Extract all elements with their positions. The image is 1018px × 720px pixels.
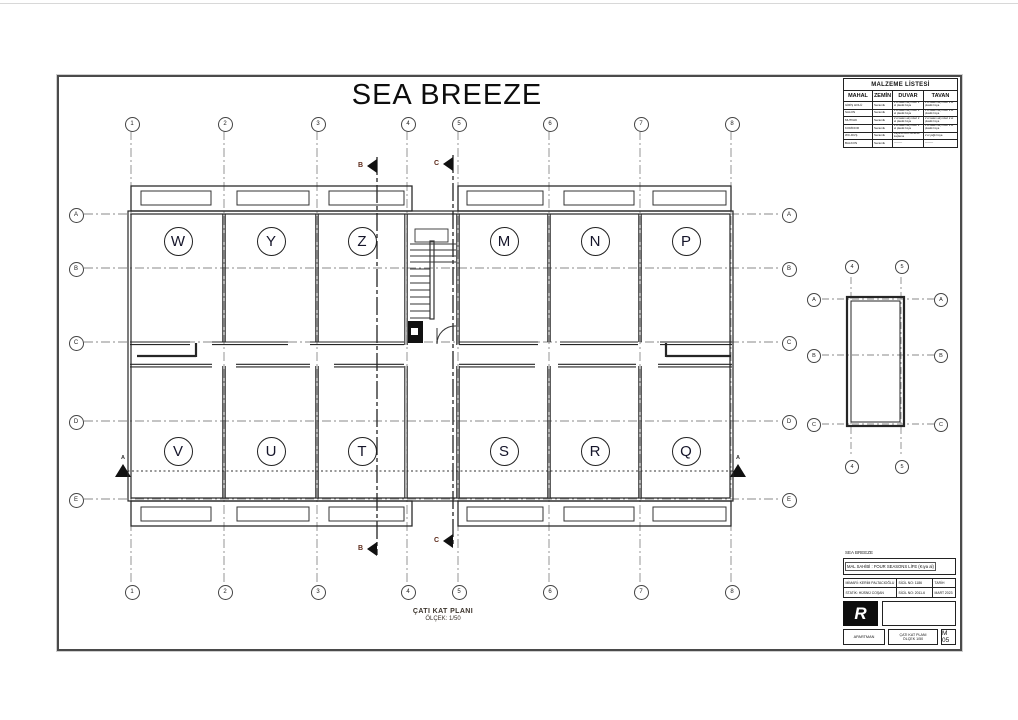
cell: KORİDOR <box>844 125 873 132</box>
room-label-p: P <box>672 227 701 256</box>
grid-row-label: A <box>74 212 78 218</box>
room-letter: P <box>681 233 691 250</box>
grid-col-label: 1 <box>130 589 133 595</box>
room-letter: Y <box>266 233 276 250</box>
title-block-project: SEA BREEZE <box>845 550 873 555</box>
cell: ——— <box>893 140 924 147</box>
room-label-v: V <box>164 437 193 466</box>
date-value: MART 2023 <box>933 588 955 597</box>
table-row: KORİDORSeramik2 el saten alçı üzeri 2 el… <box>844 125 957 133</box>
staircase <box>410 229 456 319</box>
table-row: WC-DUŞSeramikFayans üzeri seramik kaplam… <box>844 133 957 141</box>
grid-col-label: 8 <box>730 589 733 595</box>
corridor-walls <box>130 342 732 367</box>
title-block: SEA BREEZE MAL SAHİBİ : FOUR SEASONS LİF… <box>843 549 958 646</box>
building-type-label: APARTMAN <box>843 629 885 645</box>
side-plan-walls <box>847 297 904 426</box>
grid-row-bubble-right-e: E <box>782 493 797 508</box>
grid-row-label: C <box>812 422 816 428</box>
grid-col-bubble-bottom-2: 2 <box>218 585 233 600</box>
architect-reg-no: SİCİL NO: 1186 <box>897 579 933 588</box>
section-label-b-top: B <box>358 162 363 169</box>
cell: Seramik <box>873 125 893 132</box>
grid-col-label: 1 <box>130 121 133 127</box>
cell: Seramik <box>873 110 893 117</box>
room-label-s: S <box>490 437 519 466</box>
room-letter: Z <box>357 233 366 250</box>
room-letter: Q <box>680 443 692 460</box>
section-label-c-bottom: C <box>434 537 439 544</box>
room-label-m: M <box>490 227 519 256</box>
grid-col-bubble-bottom-8: 8 <box>725 585 740 600</box>
grid-row-label: C <box>939 422 943 428</box>
grid-col-bubble-bottom-1: 1 <box>125 585 140 600</box>
grid-col-bubble-bottom-5: 5 <box>452 585 467 600</box>
room-label-u: U <box>257 437 286 466</box>
table-row: MUTFAKSeramik2 el saten alçı üzeri 2 el … <box>844 117 957 125</box>
static-reg-no: SİCİL NO: 2011-6 <box>897 588 933 597</box>
sheet-number: M 05 <box>941 629 956 645</box>
grid-row-label: B <box>74 266 78 272</box>
grid-row-label: E <box>74 497 78 503</box>
cell: 2 el saten alçı üzeri 2 el plastik boya <box>893 117 924 124</box>
sheet-scale: ÖLÇEK 1/50 <box>903 637 923 641</box>
grid-row-label: A <box>787 212 791 218</box>
cell: MUTFAK <box>844 117 873 124</box>
logo-letter: R <box>854 604 866 624</box>
col-header: TAVAN <box>924 91 957 101</box>
grid-row-label: D <box>74 419 78 425</box>
side-grid-bubble-right-a: A <box>934 293 948 307</box>
section-label-a-right: A <box>732 455 744 461</box>
grid-col-bubble-top-4: 4 <box>401 117 416 132</box>
cell: Fayans üzeri seramik kaplama <box>893 133 924 140</box>
grid-col-label: 7 <box>639 589 642 595</box>
grid-col-bubble-top-2: 2 <box>218 117 233 132</box>
grid-row-label: A <box>812 297 816 303</box>
side-grid-bubble-top-4: 4 <box>845 260 859 274</box>
room-letter: N <box>590 233 601 250</box>
room-letter: M <box>498 233 511 250</box>
room-letter: V <box>173 443 183 460</box>
side-grid-bubble-left-c: C <box>807 418 821 432</box>
grid-row-bubble-left-d: D <box>69 415 84 430</box>
table-row: BALKONSeramik—————— <box>844 140 957 147</box>
interior-walls-vertical <box>223 214 641 498</box>
grid-col-bubble-top-5: 5 <box>452 117 467 132</box>
side-grid-bubble-bottom-4: 4 <box>845 460 859 474</box>
caption-scale: ÖLÇEK: 1/50 <box>363 616 523 622</box>
room-letter: S <box>499 443 509 460</box>
grid-row-bubble-left-c: C <box>69 336 84 351</box>
room-letter: U <box>266 443 277 460</box>
room-letter: W <box>171 233 185 250</box>
materials-table: MALZEME LİSTESİ MAHAL ZEMİN DUVAR TAVAN … <box>843 78 958 148</box>
side-grid-bubble-bottom-5: 5 <box>895 460 909 474</box>
side-grid-bubble-right-b: B <box>934 349 948 363</box>
room-label-t: T <box>348 437 377 466</box>
grid-col-label: 4 <box>406 589 409 595</box>
col-header: MAHAL <box>844 91 873 101</box>
cell: SALON <box>844 110 873 117</box>
cell: 2 el yağlı boya <box>924 133 957 140</box>
date-label: TARİH <box>933 579 955 588</box>
grid-col-label: 4 <box>850 264 853 270</box>
grid-row-bubble-right-c: C <box>782 336 797 351</box>
title-block-credentials: MİMARİ: KERİM PALTACIOĞLU SİCİL NO: 1186… <box>843 578 956 598</box>
grid-row-bubble-left-a: A <box>69 208 84 223</box>
cell: 2 el saten alçı üzeri 2 el plastik boya <box>924 102 957 109</box>
grid-row-bubble-right-b: B <box>782 262 797 277</box>
grid-row-label: C <box>74 340 78 346</box>
room-label-q: Q <box>672 437 701 466</box>
cell: GİRİŞ HOLÜ <box>844 102 873 109</box>
side-grid-bubble-top-5: 5 <box>895 260 909 274</box>
grid-row-bubble-left-e: E <box>69 493 84 508</box>
grid-col-label: 7 <box>639 121 642 127</box>
grid-col-label: 4 <box>850 464 853 470</box>
grid-row-bubble-right-d: D <box>782 415 797 430</box>
cell: 2 el saten alçı üzeri 2 el plastik boya <box>893 102 924 109</box>
cell: 2 el saten alçı üzeri 2 el plastik boya <box>893 110 924 117</box>
grid-col-label: 2 <box>223 121 226 127</box>
page-title: SEA BREEZE <box>280 79 614 112</box>
grid-col-label: 5 <box>900 464 903 470</box>
grid-row-label: B <box>812 353 816 359</box>
section-label-a-left: A <box>117 455 129 461</box>
side-grid-bubble-right-c: C <box>934 418 948 432</box>
title-block-owner: MAL SAHİBİ : FOUR SEASONS LİFE (Kıya al) <box>843 558 956 575</box>
cell: ——— <box>924 140 957 147</box>
room-letter: T <box>357 443 366 460</box>
grid-col-label: 6 <box>548 121 551 127</box>
grid-col-label: 5 <box>900 264 903 270</box>
architect-name: MİMARİ: KERİM PALTACIOĞLU <box>844 579 897 588</box>
grid-row-label: A <box>939 297 943 303</box>
cell: Seramik <box>873 102 893 109</box>
cell: BALKON <box>844 140 873 147</box>
room-label-z: Z <box>348 227 377 256</box>
grid-col-bubble-top-6: 6 <box>543 117 558 132</box>
grid-row-label: E <box>787 497 791 503</box>
section-label-c-top: C <box>434 160 439 167</box>
company-logo: R <box>843 601 878 626</box>
room-label-y: Y <box>257 227 286 256</box>
room-letter: R <box>590 443 601 460</box>
cell: WC-DUŞ <box>844 133 873 140</box>
cell: Seramik <box>873 117 893 124</box>
elevator-shaft <box>408 321 423 343</box>
grid-col-bubble-top-3: 3 <box>311 117 326 132</box>
owner-text: MAL SAHİBİ : FOUR SEASONS LİFE (Kıya al) <box>847 564 934 569</box>
cell: 2 el saten alçı üzeri 2 el plastik boya <box>893 125 924 132</box>
grid-row-label: D <box>787 419 791 425</box>
room-label-w: W <box>164 227 193 256</box>
materials-table-header: MAHAL ZEMİN DUVAR TAVAN <box>844 91 957 102</box>
cell: 2 el saten alçı üzeri 2 el plastik boya <box>924 125 957 132</box>
grid-col-label: 2 <box>223 589 226 595</box>
caption-title: ÇATI KAT PLANI <box>363 608 523 615</box>
grid-col-label: 5 <box>457 589 460 595</box>
side-grid-bubble-left-b: B <box>807 349 821 363</box>
grid-col-bubble-bottom-7: 7 <box>634 585 649 600</box>
grid-col-label: 3 <box>316 589 319 595</box>
grid-row-bubble-right-a: A <box>782 208 797 223</box>
sheet-title-cell: ÇATI KAT PLANI ÖLÇEK 1/50 <box>888 629 938 645</box>
grid-row-bubble-left-b: B <box>69 262 84 277</box>
static-engineer-name: STATİK: HÜSNÜ COŞAN <box>844 588 897 597</box>
cell: 2 el saten alçı üzeri 2 el plastik boya <box>924 110 957 117</box>
grid-col-bubble-top-7: 7 <box>634 117 649 132</box>
section-lines-bc <box>377 155 453 555</box>
grid-col-label: 6 <box>548 589 551 595</box>
table-row: GİRİŞ HOLÜSeramik2 el saten alçı üzeri 2… <box>844 102 957 110</box>
grid-col-label: 3 <box>316 121 319 127</box>
drawing-page: SEA BREEZE 1 2 3 4 5 6 7 8 1 2 3 4 5 6 7… <box>0 0 1018 720</box>
grid-col-bubble-bottom-3: 3 <box>311 585 326 600</box>
grid-row-label: C <box>787 340 791 346</box>
cell: 2 el saten alçı üzeri 2 el plastik boya <box>924 117 957 124</box>
grid-col-label: 8 <box>730 121 733 127</box>
drawing-caption: ÇATI KAT PLANI ÖLÇEK: 1/50 <box>363 608 523 622</box>
grid-col-bubble-bottom-4: 4 <box>401 585 416 600</box>
section-marker-triangles <box>115 157 746 556</box>
grid-col-bubble-bottom-6: 6 <box>543 585 558 600</box>
grid-col-label: 4 <box>406 121 409 127</box>
room-label-r: R <box>581 437 610 466</box>
table-row: SALONSeramik2 el saten alçı üzeri 2 el p… <box>844 110 957 118</box>
grid-col-bubble-top-1: 1 <box>125 117 140 132</box>
room-label-n: N <box>581 227 610 256</box>
col-header: DUVAR <box>893 91 924 101</box>
grid-col-label: 5 <box>457 121 460 127</box>
grid-col-bubble-top-8: 8 <box>725 117 740 132</box>
materials-table-title: MALZEME LİSTESİ <box>844 79 957 91</box>
cell: Seramik <box>873 133 893 140</box>
side-grid-bubble-left-a: A <box>807 293 821 307</box>
grid-row-label: B <box>787 266 791 272</box>
title-block-detail-box <box>882 601 956 626</box>
section-label-b-bottom: B <box>358 545 363 552</box>
cell: Seramik <box>873 140 893 147</box>
col-header: ZEMİN <box>873 91 893 101</box>
grid-row-label: B <box>939 353 943 359</box>
side-plan-grid <box>822 277 935 456</box>
